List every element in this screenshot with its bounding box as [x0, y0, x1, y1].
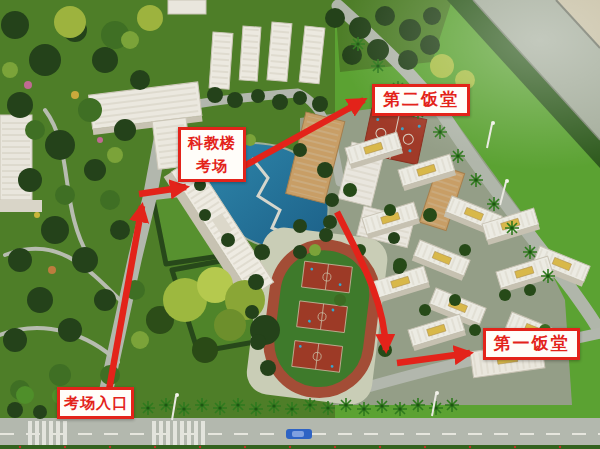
label-first-canteen: 第一饭堂	[483, 328, 580, 360]
label-exam-building-line2: 考场	[185, 155, 239, 178]
label-exam-building: 科教楼 考场	[178, 127, 246, 182]
bottom-road	[0, 418, 600, 449]
model-scene	[0, 0, 600, 449]
label-second-canteen: 第二饭堂	[372, 84, 470, 116]
label-exam-entrance-text: 考场入口	[64, 394, 128, 411]
label-exam-building-line1: 科教楼	[185, 132, 239, 155]
label-exam-entrance: 考场入口	[57, 387, 134, 419]
car	[286, 429, 312, 439]
campus-model-photo: 第二饭堂 科教楼 考场 第一饭堂 考场入口	[0, 0, 600, 449]
label-first-canteen-text: 第一饭堂	[494, 334, 570, 353]
label-second-canteen-text: 第二饭堂	[383, 90, 459, 109]
corner-building	[168, 0, 206, 14]
